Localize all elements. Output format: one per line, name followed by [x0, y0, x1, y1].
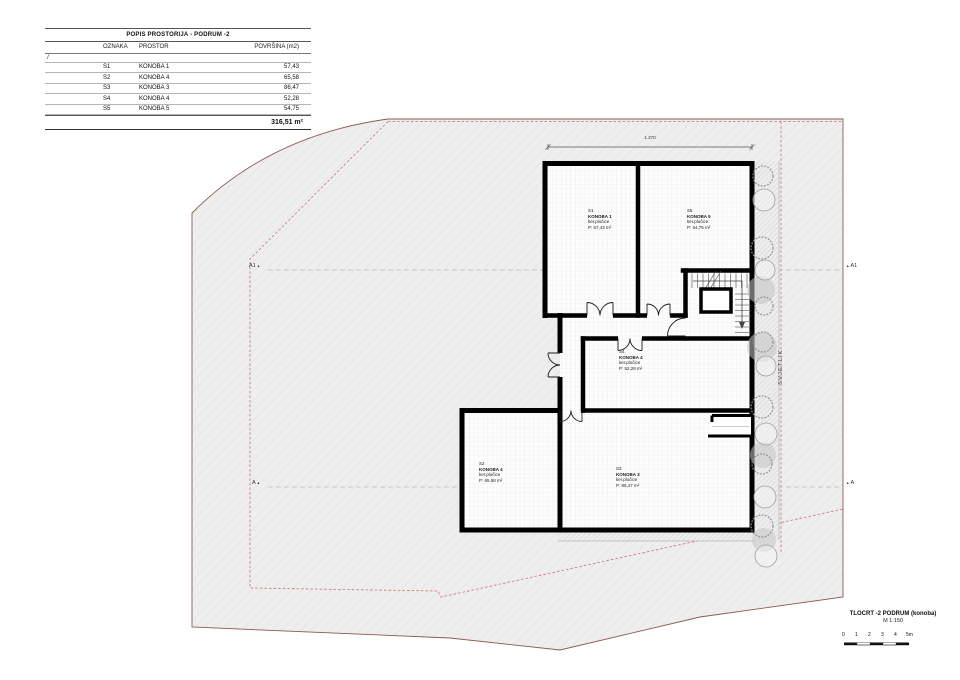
- wall-niche: [708, 414, 752, 436]
- col-header-povrsina: POVRŠINA (m2): [241, 44, 311, 50]
- room-area: P: 86,47 m²: [616, 483, 640, 489]
- room-area: P: 52,28 m²: [619, 366, 643, 372]
- room-finish: ker.pločice: [616, 477, 640, 483]
- section-marker-a1-left: A1▲: [249, 263, 261, 269]
- cell-oznaka: S5: [103, 106, 139, 112]
- cell-prostor: KONOBA 3: [139, 85, 241, 91]
- scale-label-5: 5m: [906, 632, 913, 638]
- scale-bar: [844, 643, 909, 646]
- lightwell-label: SVJETLIK: [778, 342, 784, 392]
- cell-povrsina: 86,47: [241, 85, 311, 91]
- cell-oznaka: S2: [103, 75, 139, 81]
- room-finish: ker.pločice: [619, 360, 643, 366]
- room-label-s3: S3 KONOBA 3 ker.pločice P: 86,47 m²: [616, 466, 640, 488]
- room-label-s2: S2 KONOBA 4 ker.pločice P: 65,58 m²: [479, 461, 503, 483]
- scale-label-4: 4: [894, 632, 897, 638]
- room-area: P: 57,43 m²: [588, 225, 612, 231]
- room-area: P: 65,58 m²: [479, 478, 503, 484]
- cell-prostor: KONOBA 4: [139, 75, 241, 81]
- drawing-title: TLOCRT -2 PODRUM (konoba): [832, 611, 954, 618]
- title-block: TLOCRT -2 PODRUM (konoba) M 1:150: [832, 611, 954, 625]
- section-triangle-icon: ▲: [256, 264, 261, 268]
- cell-oznaka: S1: [103, 64, 139, 70]
- floor-plan-sheet: { "table": { "title": "POPIS PROSTORIJA …: [0, 0, 960, 680]
- cell-povrsina: 57,43: [241, 64, 311, 70]
- table-group-row: /: [45, 54, 311, 63]
- elevator-shaft: [701, 289, 731, 312]
- section-marker-a1-right: ▲A1: [845, 263, 857, 269]
- cell-oznaka: S4: [103, 96, 139, 102]
- cell-povrsina: 65,58: [241, 75, 311, 81]
- cell-prostor: KONOBA 5: [139, 106, 241, 112]
- room-area: P: 54,75 m²: [687, 225, 711, 231]
- cell-oznaka: S3: [103, 85, 139, 91]
- cell-povrsina: 52,28: [241, 96, 311, 102]
- table-row: S3 KONOBA 3 86,47: [45, 84, 311, 95]
- table-row: S1 KONOBA 1 57,43: [45, 63, 311, 74]
- room-schedule-table: POPIS PROSTORIJA - PODRUM -2 OZNAKA PROS…: [45, 28, 311, 130]
- scale-label-1: 1: [855, 632, 858, 638]
- table-title: POPIS PROSTORIJA - PODRUM -2: [45, 29, 311, 42]
- section-triangle-icon: ▲: [256, 481, 261, 485]
- scale-label-0: 0: [842, 632, 845, 638]
- table-row: S5 KONOBA 5 54,75: [45, 105, 311, 116]
- cell-povrsina: 54,75: [241, 106, 311, 112]
- section-marker-a-right: ▲A: [845, 480, 854, 486]
- table-total: 316,51 m²: [45, 115, 311, 130]
- room-label-s5: S5 KONOBA 5 ker.pločice P: 54,75 m²: [687, 208, 711, 230]
- group-marker: /: [45, 55, 103, 61]
- col-header-oznaka: OZNAKA: [103, 44, 139, 50]
- section-marker-a-left: A▲: [252, 480, 261, 486]
- col-header-prostor: PROSTOR: [139, 44, 241, 50]
- drawing-scale: M 1:150: [832, 618, 954, 625]
- table-header-row: OZNAKA PROSTOR POVRŠINA (m2): [45, 42, 311, 54]
- cell-prostor: KONOBA 1: [139, 64, 241, 70]
- room-label-s4: S4 KONOBA 4 ker.pločice P: 52,28 m²: [619, 349, 643, 371]
- scale-label-3: 3: [881, 632, 884, 638]
- section-triangle-icon: ▲: [845, 264, 850, 268]
- section-triangle-icon: ▲: [845, 481, 850, 485]
- scale-label-2: 2: [868, 632, 871, 638]
- room-label-s1: S1 KONOBA 1 ker.pločice P: 57,43 m²: [588, 208, 612, 230]
- cell-prostor: KONOBA 4: [139, 96, 241, 102]
- room-finish: ker.pločice: [588, 219, 612, 225]
- room-finish: ker.pločice: [479, 472, 503, 478]
- room-finish: ker.pločice: [687, 219, 711, 225]
- table-row: S2 KONOBA 4 65,58: [45, 73, 311, 84]
- table-row: S4 KONOBA 4 52,28: [45, 94, 311, 105]
- dimension-value: 1.370: [625, 135, 675, 140]
